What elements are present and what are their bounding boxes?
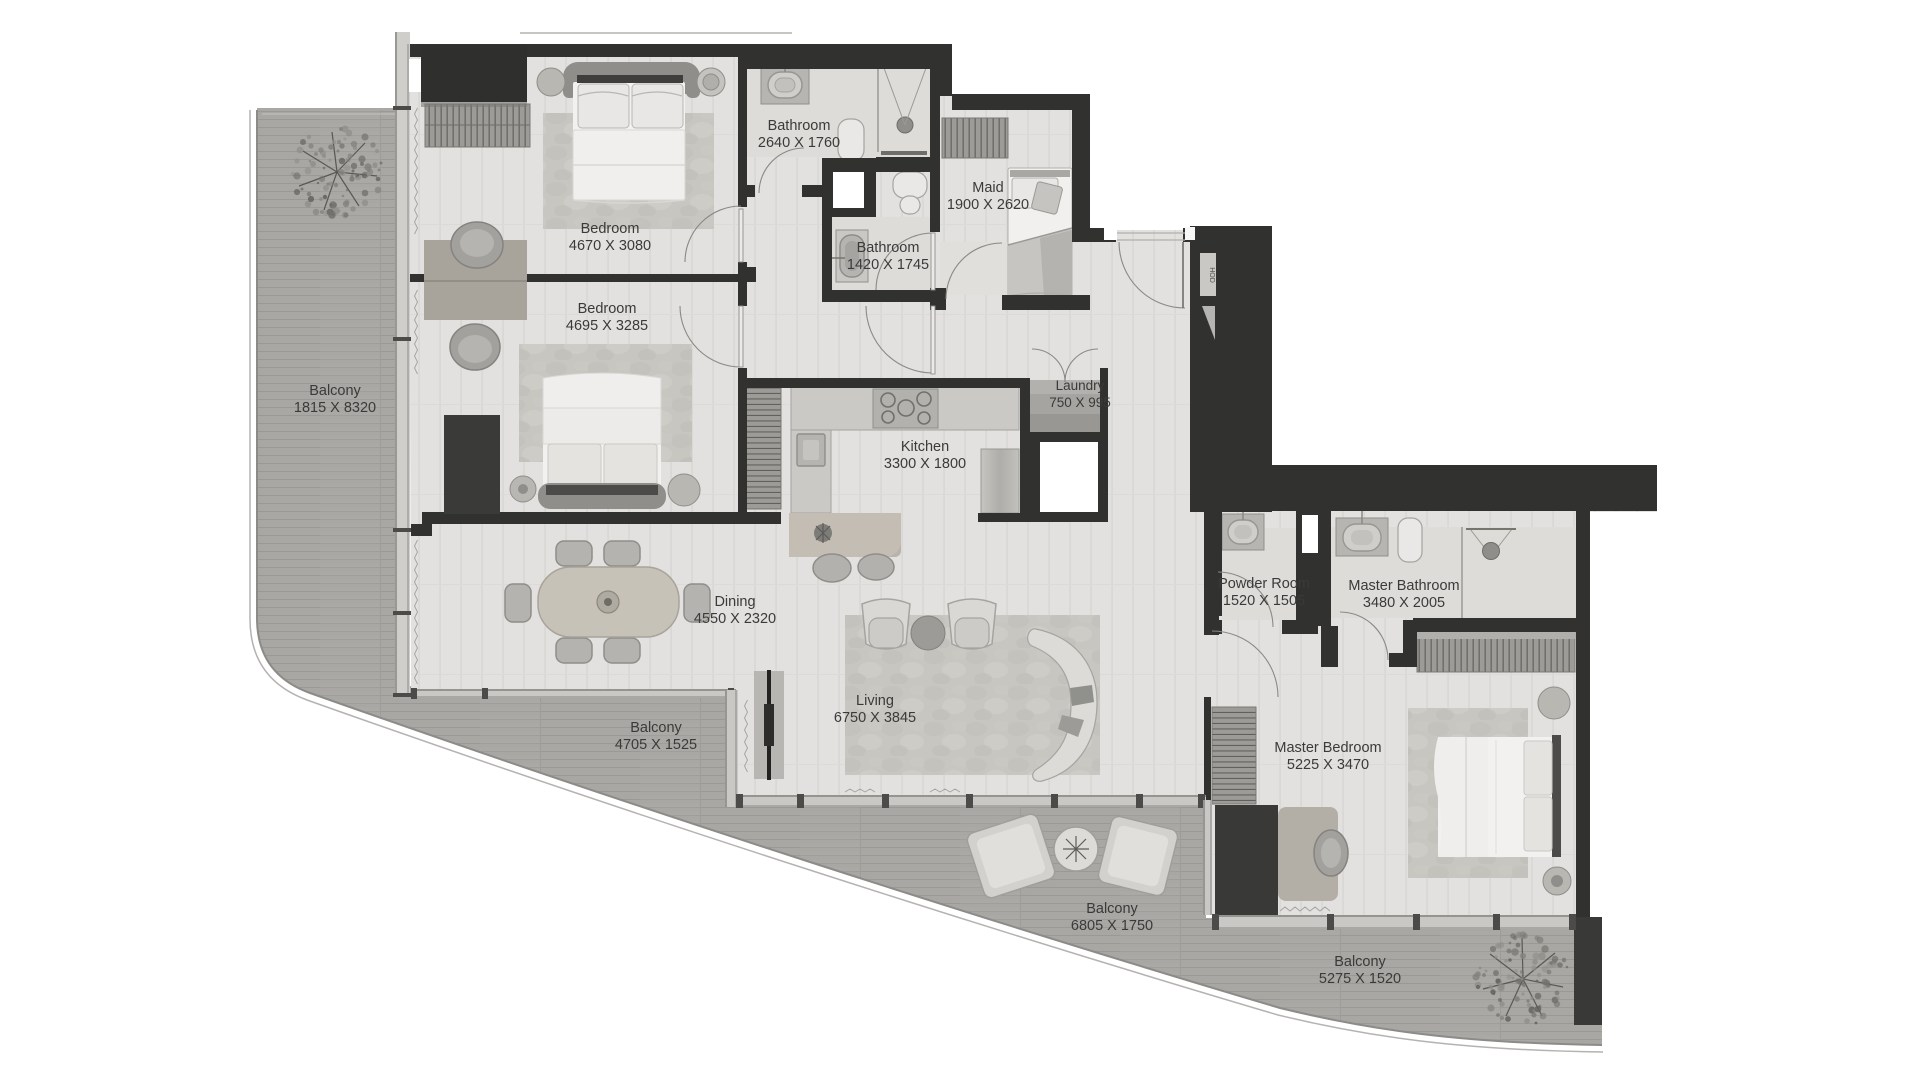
svg-text:4695 X 3285: 4695 X 3285 [566,318,648,334]
svg-text:Maid: Maid [972,180,1003,196]
svg-text:6805 X 1750: 6805 X 1750 [1071,918,1153,934]
svg-text:Powder Room: Powder Room [1218,576,1310,592]
svg-text:3480 X 2005: 3480 X 2005 [1363,595,1445,611]
svg-text:Kitchen: Kitchen [901,439,949,455]
svg-text:Bathroom: Bathroom [857,240,920,256]
svg-text:3300 X 1800: 3300 X 1800 [884,456,966,472]
svg-text:4705 X 1525: 4705 X 1525 [615,737,697,753]
svg-text:5225 X 3470: 5225 X 3470 [1287,757,1369,773]
svg-text:1420 X 1745: 1420 X 1745 [847,257,929,273]
svg-text:Bedroom: Bedroom [581,221,640,237]
svg-text:4670 X 3080: 4670 X 3080 [569,238,651,254]
svg-text:Master Bedroom: Master Bedroom [1274,740,1381,756]
svg-text:HOD: HOD [1208,267,1215,283]
svg-text:1520 X 1505: 1520 X 1505 [1223,593,1305,609]
svg-text:Balcony: Balcony [630,720,682,736]
svg-text:2640 X 1760: 2640 X 1760 [758,135,840,151]
svg-text:Balcony: Balcony [1334,954,1386,970]
svg-text:5275 X 1520: 5275 X 1520 [1319,971,1401,987]
svg-text:4550 X 2320: 4550 X 2320 [694,611,776,627]
svg-text:1815 X 8320: 1815 X 8320 [294,400,376,416]
svg-text:1900 X 2620: 1900 X 2620 [947,197,1029,213]
svg-text:Balcony: Balcony [1086,901,1138,917]
svg-text:Balcony: Balcony [309,383,361,399]
svg-text:Laundry: Laundry [1056,378,1105,393]
svg-text:Master Bathroom: Master Bathroom [1348,578,1459,594]
svg-text:6750 X 3845: 6750 X 3845 [834,710,916,726]
svg-text:Dining: Dining [714,594,755,610]
svg-text:Bedroom: Bedroom [578,301,637,317]
svg-text:Bathroom: Bathroom [768,118,831,134]
svg-text:Living: Living [856,693,894,709]
svg-text:750 X 995: 750 X 995 [1049,395,1111,410]
